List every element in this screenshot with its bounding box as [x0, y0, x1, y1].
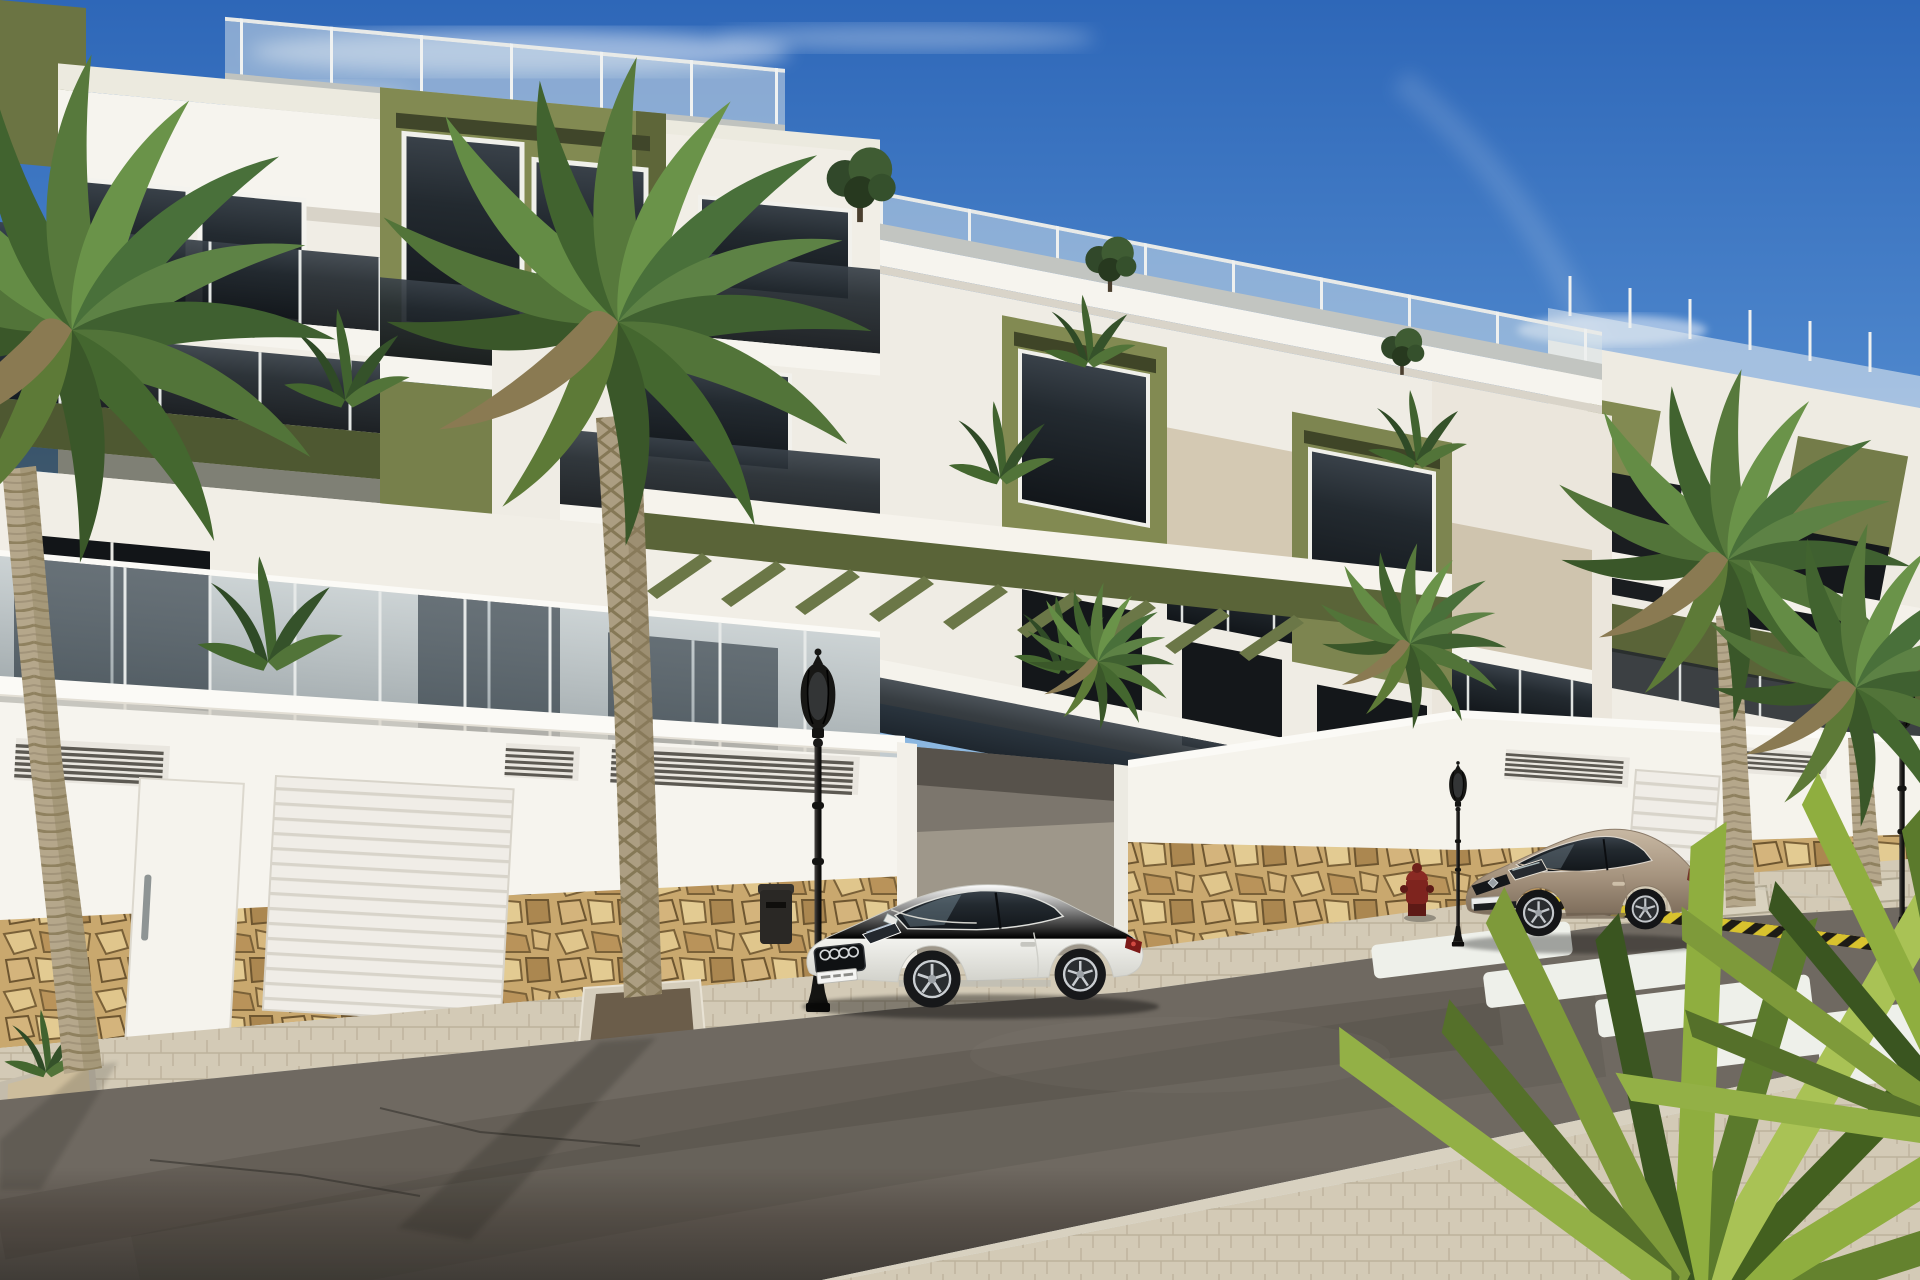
vent-grille: [504, 743, 580, 781]
window: [1020, 351, 1148, 526]
front-wheel: [904, 951, 961, 1008]
worn-patch: [970, 1017, 1390, 1093]
cloud: [715, 25, 1095, 51]
scene-svg: [0, 0, 1920, 1280]
garage-door: [263, 776, 514, 1023]
door-handle: [1020, 942, 1035, 947]
pedestrian-door: [125, 778, 244, 1049]
car-shadow: [802, 994, 1159, 1019]
rear-wheel: [1625, 889, 1666, 930]
rear-wheel: [1055, 949, 1106, 1000]
render-canvas: [0, 0, 1920, 1280]
ramp-jamb: [1114, 764, 1130, 952]
litter-bin: [758, 884, 794, 944]
door-handle: [1612, 882, 1625, 886]
tail-light-glow: [1131, 942, 1136, 947]
